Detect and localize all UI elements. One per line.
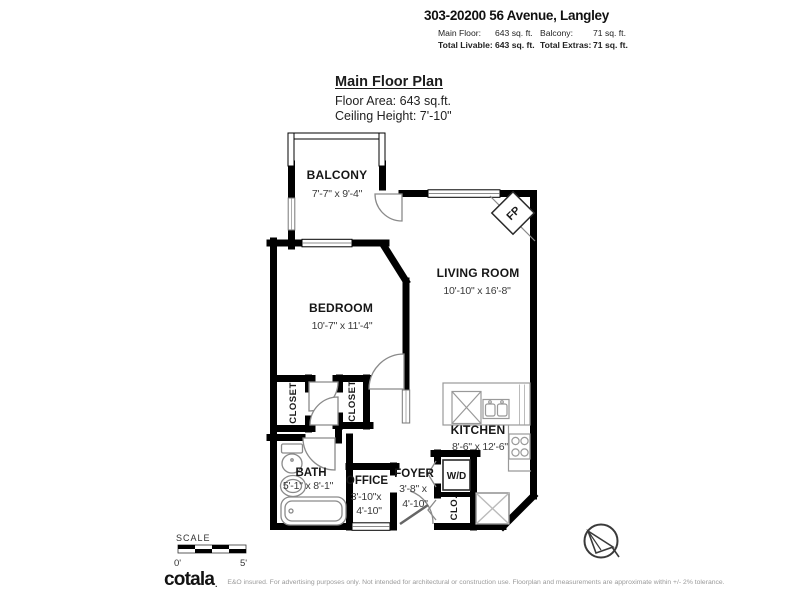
balcony-label: BALCONY 7'-7" x 9'-4"	[307, 168, 368, 200]
scale-min: 0'	[174, 558, 181, 569]
svg-text:OFFICE: OFFICE	[346, 475, 388, 487]
cooktop	[509, 434, 530, 459]
bathtub	[281, 497, 346, 525]
balcony-door	[375, 194, 402, 221]
svg-text:4'-10": 4'-10"	[356, 505, 382, 517]
floorplan-drawing: FP	[0, 0, 800, 600]
svg-text:4'-10": 4'-10"	[402, 498, 428, 510]
svg-text:BATH: BATH	[295, 467, 326, 479]
washer-dryer: W/D	[443, 460, 470, 490]
svg-text:10'-7" x 11'-4": 10'-7" x 11'-4"	[312, 320, 373, 332]
hall-louver-panel	[402, 390, 409, 423]
cotala-logo: cotala	[164, 570, 214, 589]
balcony-railing	[288, 133, 385, 166]
svg-text:3'-8" x: 3'-8" x	[399, 483, 428, 495]
svg-text:3'-10"x: 3'-10"x	[351, 491, 383, 503]
balcony-side-window	[288, 198, 295, 230]
living-room-label: LIVING ROOM 10'-10" x 16'-8"	[437, 266, 520, 297]
bedroom-window	[302, 239, 352, 247]
scale-bar: SCALE 0' 5'	[174, 533, 247, 569]
clo-label: CLO.	[449, 496, 460, 521]
bath-door	[303, 438, 335, 470]
svg-text:BEDROOM: BEDROOM	[309, 301, 373, 315]
svg-text:LIVING ROOM: LIVING ROOM	[437, 266, 520, 280]
oven	[452, 392, 481, 424]
disclaimer-text: E&O insured. For advertising purposes on…	[227, 579, 724, 589]
bedroom-door	[369, 354, 404, 389]
floorplan-page: 303-20200 56 Avenue, Langley Main Floor:…	[0, 0, 800, 600]
fridge	[476, 493, 509, 524]
foyer-label: FOYER 3'-8" x 4'-10"	[394, 468, 434, 510]
scale-max: 5'	[240, 558, 247, 569]
cotala-logo-mark: .	[215, 580, 217, 589]
kitchen-label: KITCHEN 8'-6" x 12'-6"	[451, 423, 509, 453]
north-compass-icon	[585, 525, 620, 558]
living-room-window	[428, 190, 500, 198]
closet-left-label: CLOSET	[288, 382, 299, 424]
bedroom-label: BEDROOM 10'-7" x 11'-4"	[309, 301, 373, 332]
kitchen-sink	[483, 400, 509, 419]
fireplace: FP	[490, 192, 535, 241]
svg-text:FOYER: FOYER	[394, 468, 434, 480]
svg-text:5'-1" x 8'-1": 5'-1" x 8'-1"	[283, 480, 334, 492]
dishwasher	[520, 385, 525, 425]
svg-text:KITCHEN: KITCHEN	[451, 423, 506, 437]
svg-text:8'-6" x 12'-6": 8'-6" x 12'-6"	[452, 441, 508, 453]
svg-text:BALCONY: BALCONY	[307, 168, 368, 182]
closet-right-label: CLOSET	[347, 380, 358, 422]
office-window	[352, 523, 390, 531]
scale-label: SCALE	[176, 533, 211, 543]
washer-dryer-label: W/D	[447, 471, 466, 482]
svg-text:10'-10" x 16'-8": 10'-10" x 16'-8"	[443, 285, 511, 297]
svg-text:7'-7" x 9'-4": 7'-7" x 9'-4"	[312, 188, 363, 200]
footer: cotala . E&O insured. For advertising pu…	[164, 570, 784, 589]
